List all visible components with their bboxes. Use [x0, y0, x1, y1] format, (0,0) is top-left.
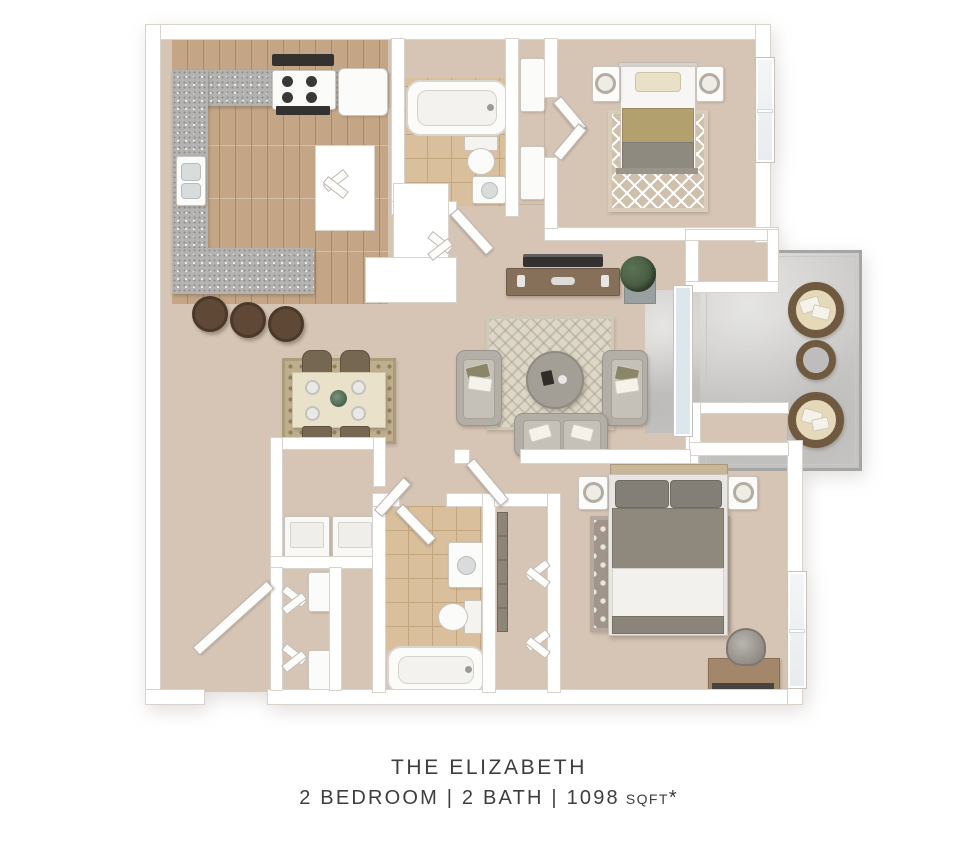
console-decor — [551, 277, 575, 285]
comforter — [612, 508, 724, 570]
tv — [523, 254, 603, 267]
floor-plan-page: THE ELIZABETH 2 BEDROOM | 2 BATH | 1098S… — [0, 0, 978, 844]
master-nook-closet — [700, 413, 788, 443]
wall — [483, 494, 495, 692]
lamp — [583, 482, 604, 503]
blanket-fold — [622, 142, 694, 170]
wall — [146, 690, 204, 704]
bathtub — [406, 80, 508, 136]
caption: THE ELIZABETH 2 BEDROOM | 2 BATH | 1098S… — [0, 756, 978, 810]
lamp — [699, 73, 720, 94]
place-setting — [305, 406, 320, 421]
closet-shelf — [520, 146, 545, 200]
wall — [271, 438, 385, 449]
wall — [548, 494, 560, 692]
bifold-door — [522, 556, 548, 592]
potted-plant — [620, 256, 656, 292]
wall — [545, 158, 557, 228]
sink-basin — [457, 556, 476, 575]
wall — [690, 443, 788, 455]
wall — [455, 450, 469, 463]
dryer-lid — [338, 522, 372, 548]
bed-pillow — [670, 480, 722, 508]
wall — [392, 39, 404, 207]
floor-plan — [0, 0, 978, 844]
console-decor — [601, 275, 609, 287]
wall — [268, 690, 802, 704]
closet-shelf — [308, 650, 332, 690]
wall — [271, 557, 385, 568]
window — [756, 58, 774, 162]
centerpiece — [330, 390, 347, 407]
breakfast-bar — [172, 248, 314, 294]
table-decor — [541, 370, 555, 386]
plan-title: THE ELIZABETH — [0, 756, 978, 780]
place-setting — [351, 380, 366, 395]
foot-blanket — [612, 616, 724, 634]
dryer — [332, 516, 378, 558]
bed-pillow — [615, 480, 669, 508]
nightstand — [728, 476, 758, 510]
nightstand — [696, 66, 724, 102]
bar-stool — [192, 296, 228, 332]
master-bed — [608, 474, 728, 636]
refrigerator — [338, 68, 388, 116]
lamp — [733, 482, 754, 503]
dining-chair — [302, 350, 332, 374]
specs-text: 2 BEDROOM | 2 BATH | 1098 — [299, 787, 620, 809]
stove — [272, 70, 336, 110]
patio-cushion — [811, 304, 832, 321]
patio-cushion — [811, 416, 830, 431]
tub-faucet — [465, 666, 472, 673]
bifold-door — [430, 228, 456, 264]
oven-front — [276, 106, 330, 115]
nightstand — [592, 66, 620, 102]
sliding-glass-door — [674, 286, 692, 436]
tub-basin — [398, 656, 474, 684]
footboard — [616, 168, 698, 174]
armchair — [456, 350, 502, 426]
wall — [545, 39, 557, 97]
range-hood — [272, 54, 334, 66]
wall — [271, 438, 282, 568]
bar-stool — [268, 306, 304, 342]
bifold-door — [522, 626, 548, 662]
sliding-closet-door — [497, 512, 508, 632]
place-setting — [305, 380, 320, 395]
sink-basin — [181, 183, 201, 199]
patio-side-table — [796, 340, 836, 380]
dining-chair — [340, 350, 370, 374]
bar-stool — [230, 302, 266, 338]
specs-unit: SQFT — [626, 791, 669, 807]
patio-chair — [788, 282, 844, 338]
burner — [306, 76, 317, 87]
wall — [686, 282, 778, 292]
bifold-door — [320, 166, 346, 202]
burner — [306, 92, 317, 103]
patio-chair — [788, 392, 844, 448]
bathtub — [387, 646, 485, 694]
coffee-table — [526, 351, 584, 409]
wall — [521, 450, 690, 463]
lamp — [595, 73, 616, 94]
blanket — [622, 108, 694, 144]
sink-basin — [181, 163, 201, 181]
wall — [330, 568, 341, 690]
floor-mat — [712, 683, 774, 689]
burner — [282, 76, 293, 87]
console-decor — [517, 275, 525, 287]
closet-shelf — [520, 58, 545, 112]
table-decor — [558, 375, 567, 384]
sheet — [612, 568, 724, 618]
nightstand — [578, 476, 608, 510]
wall — [686, 230, 778, 240]
window — [788, 572, 806, 688]
bifold-door — [284, 582, 310, 618]
bed-pillow — [635, 72, 681, 92]
washer-lid — [290, 522, 324, 548]
plan-specs: 2 BEDROOM | 2 BATH | 1098SQFT* — [0, 787, 978, 810]
burner — [282, 92, 293, 103]
kitchen-sink — [176, 156, 206, 206]
wall — [373, 494, 385, 692]
tub-basin — [417, 90, 497, 126]
bedroom2-bed — [618, 62, 696, 174]
bath1-vanity — [472, 176, 506, 204]
place-setting — [351, 406, 366, 421]
bifold-door — [284, 640, 310, 676]
dining-table — [292, 372, 386, 428]
wall — [374, 438, 385, 486]
washer — [284, 516, 330, 558]
wall — [690, 403, 788, 413]
armchair — [602, 350, 648, 426]
bath2-vanity — [448, 542, 484, 588]
toilet-bowl — [438, 603, 468, 631]
tub-faucet — [487, 104, 494, 111]
sink-basin — [481, 182, 498, 199]
specs-footnote-star: * — [669, 787, 679, 809]
patio-storage-closet — [698, 240, 768, 282]
wall — [366, 258, 456, 302]
wall — [506, 39, 518, 216]
tv-console — [506, 268, 620, 296]
wall — [158, 25, 770, 39]
toilet-bowl — [467, 148, 495, 175]
wall — [146, 25, 160, 704]
closet-shelf — [308, 572, 332, 612]
mirror — [726, 628, 766, 666]
